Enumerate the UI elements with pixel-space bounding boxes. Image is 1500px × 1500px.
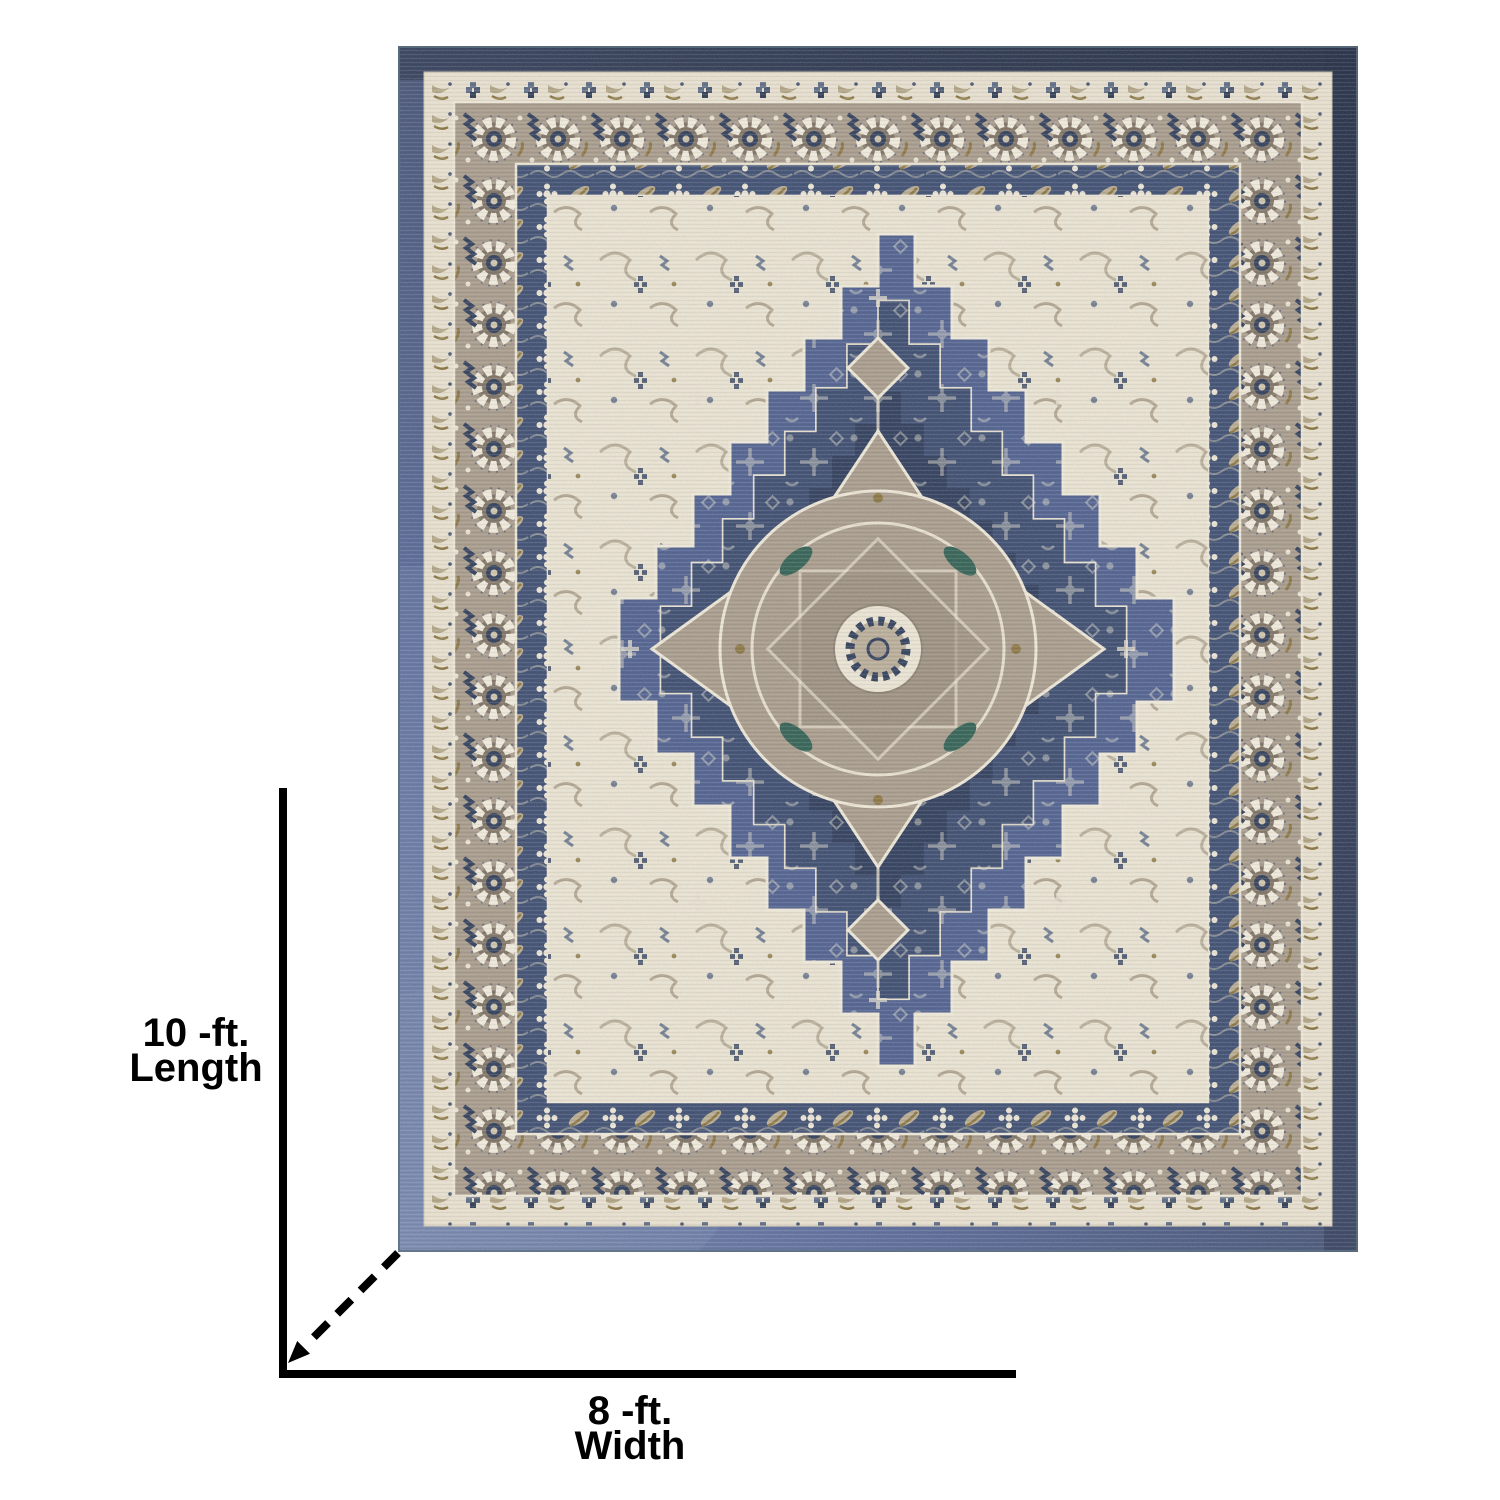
- width-name-text: Width: [575, 1429, 686, 1464]
- length-name-text: Length: [129, 1051, 262, 1086]
- product-dimension-diagram: 10 -ft. Length 8 -ft. Width: [0, 0, 1500, 1500]
- width-label: 8 -ft. Width: [530, 1394, 730, 1464]
- dimension-axes: [270, 780, 1030, 1390]
- depth-arrowhead-icon: [288, 1341, 310, 1363]
- depth-dashed-line: [306, 1253, 398, 1345]
- width-axis-line: [279, 1370, 1016, 1378]
- length-label: 10 -ft. Length: [96, 1016, 296, 1086]
